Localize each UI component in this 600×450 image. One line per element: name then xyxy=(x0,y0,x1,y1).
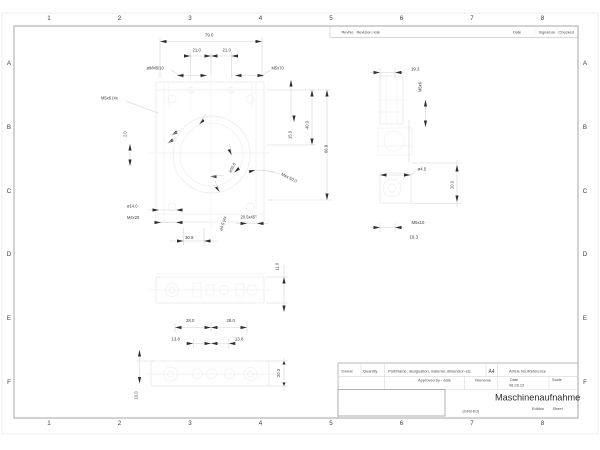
svg-text:Signature: Signature xyxy=(539,30,556,35)
svg-text:28.0: 28.0 xyxy=(227,318,236,323)
svg-text:7: 7 xyxy=(470,420,474,427)
svg-text:21.0: 21.0 xyxy=(193,48,202,53)
svg-text:5: 5 xyxy=(329,420,333,427)
svg-text:1: 1 xyxy=(47,420,51,427)
svg-text:RevNo: RevNo xyxy=(342,30,354,35)
svg-text:2.0: 2.0 xyxy=(123,131,128,137)
svg-text:30.9: 30.9 xyxy=(185,235,194,240)
svg-text:D: D xyxy=(583,251,588,258)
svg-text:8: 8 xyxy=(541,420,545,427)
svg-text:4: 4 xyxy=(259,420,263,427)
svg-text:6: 6 xyxy=(400,15,404,22)
svg-text:Scale: Scale xyxy=(552,377,562,382)
svg-text:10.0: 10.0 xyxy=(133,391,138,400)
svg-text:3: 3 xyxy=(188,15,192,22)
svg-text:8: 8 xyxy=(541,15,545,22)
svg-text:2: 2 xyxy=(118,15,122,22)
svg-text:B: B xyxy=(583,124,587,131)
svg-text:08.28.13: 08.28.13 xyxy=(509,382,524,387)
svg-text:B: B xyxy=(7,124,11,131)
svg-text:13.8: 13.8 xyxy=(172,337,181,342)
svg-text:F: F xyxy=(583,379,587,386)
svg-text:(GFB-frd): (GFB-frd) xyxy=(463,409,480,414)
svg-text:ø4.5: ø4.5 xyxy=(418,166,427,171)
svg-text:Article No./Reference: Article No./Reference xyxy=(509,369,546,374)
svg-text:C: C xyxy=(7,188,12,195)
svg-text:19.3: 19.3 xyxy=(411,66,420,71)
svg-text:1: 1 xyxy=(47,15,51,22)
svg-text:E: E xyxy=(583,315,587,322)
svg-text:ø9/M5/10: ø9/M5/10 xyxy=(147,66,165,71)
svg-text:Filename: Filename xyxy=(475,378,491,383)
svg-text:M5x10: M5x10 xyxy=(412,220,426,225)
svg-text:D: D xyxy=(7,251,12,258)
svg-text:Edition: Edition xyxy=(532,406,544,411)
svg-text:M4x20: M4x20 xyxy=(127,215,140,220)
svg-text:19.3: 19.3 xyxy=(410,235,419,240)
svg-text:4: 4 xyxy=(259,15,263,22)
svg-text:F: F xyxy=(7,379,11,386)
svg-text:Date: Date xyxy=(513,30,521,35)
svg-text:21.0: 21.0 xyxy=(223,48,232,53)
svg-text:11.0: 11.0 xyxy=(275,262,280,270)
svg-text:20.3: 20.3 xyxy=(276,368,281,377)
svg-text:M5x6: M5x6 xyxy=(418,81,423,92)
svg-text:M5x6 (4x: M5x6 (4x xyxy=(101,96,118,101)
svg-text:Approved by - date: Approved by - date xyxy=(418,378,451,383)
svg-text:Sheet: Sheet xyxy=(553,406,564,411)
svg-text:20.5x45°: 20.5x45° xyxy=(241,215,258,220)
svg-text:5: 5 xyxy=(329,15,333,22)
svg-text:79.0: 79.0 xyxy=(205,33,214,38)
svg-text:Checked: Checked xyxy=(559,30,574,35)
svg-text:66.9: 66.9 xyxy=(324,144,329,153)
svg-text:28.0: 28.0 xyxy=(186,318,195,323)
svg-text:40.0: 40.0 xyxy=(305,120,310,129)
svg-text:13.8: 13.8 xyxy=(235,337,244,342)
svg-text:M5x70: M5x70 xyxy=(272,66,285,71)
svg-text:Revision note: Revision note xyxy=(357,30,381,35)
svg-text:Maschinenaufnahme: Maschinenaufnahme xyxy=(495,392,580,402)
svg-text:3: 3 xyxy=(188,420,192,427)
svg-text:format: format xyxy=(342,369,354,374)
svg-text:15.0: 15.0 xyxy=(288,130,293,139)
svg-text:E: E xyxy=(7,315,11,322)
svg-text:ø14.0: ø14.0 xyxy=(127,204,138,209)
svg-text:20.0: 20.0 xyxy=(450,180,455,189)
svg-text:2: 2 xyxy=(118,420,122,427)
svg-text:Quantity: Quantity xyxy=(363,369,378,374)
svg-text:A4: A4 xyxy=(489,369,495,375)
svg-text:C: C xyxy=(583,188,588,195)
svg-text:6: 6 xyxy=(400,420,404,427)
svg-text:7: 7 xyxy=(470,15,474,22)
svg-text:Part/Name, designation, materi: Part/Name, designation, material, dimens… xyxy=(388,369,471,374)
